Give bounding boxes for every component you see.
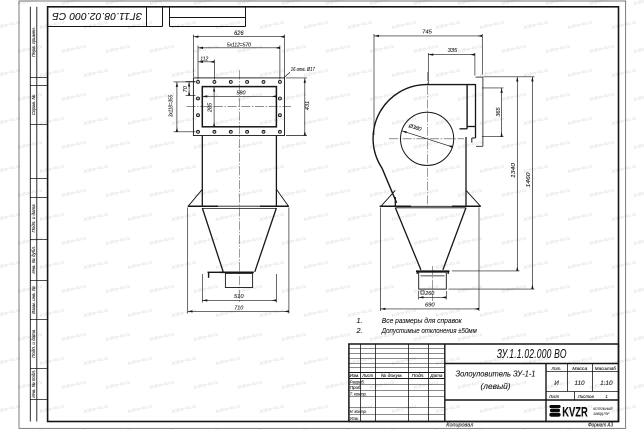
svg-text:Формат А3: Формат А3	[588, 422, 613, 428]
svg-text:ЗАВОД РЭР: ЗАВОД РЭР	[593, 412, 610, 416]
svg-text:Масштаб: Масштаб	[595, 366, 616, 371]
svg-text:2.: 2.	[356, 326, 363, 335]
svg-text:(левый): (левый)	[481, 382, 511, 391]
svg-text:Все размеры для справок: Все размеры для справок	[382, 316, 463, 325]
svg-text:Инв. № подл.: Инв. № подл.	[31, 370, 36, 398]
svg-text:№ докум.: № докум.	[381, 373, 403, 378]
svg-text:Лист: Лист	[548, 394, 559, 399]
svg-text:KVZR: KVZR	[562, 403, 588, 419]
svg-text:335: 335	[448, 48, 458, 54]
svg-text:Взам. инв. №: Взам. инв. №	[31, 286, 36, 314]
svg-text:Золоуловитель ЗУ-1-1: Золоуловитель ЗУ-1-1	[456, 370, 536, 379]
svg-text:Н. контр.: Н. контр.	[350, 409, 367, 414]
svg-text:Инв. № дубл.: Инв. № дубл.	[31, 246, 36, 274]
svg-text:И: И	[554, 380, 559, 387]
svg-text:110: 110	[574, 380, 585, 387]
svg-text:365: 365	[496, 106, 502, 116]
svg-text:Лит.: Лит.	[551, 366, 562, 371]
svg-text:1460: 1460	[526, 172, 532, 188]
svg-text:1.: 1.	[357, 316, 363, 325]
svg-text:Подп. и дата: Подп. и дата	[31, 204, 36, 233]
svg-text:Лист: Лист	[361, 373, 373, 378]
svg-text:ЗУ.1.1.02.000 ВО: ЗУ.1.1.02.000 ВО	[497, 347, 567, 361]
svg-text:Подп. и дата: Подп. и дата	[31, 329, 36, 358]
svg-text:Листов: Листов	[577, 394, 595, 399]
svg-text:Допустимые отклонения ±50мм: Допустимые отклонения ±50мм	[381, 326, 477, 335]
svg-text:Т. контр.: Т. контр.	[350, 391, 367, 396]
svg-text:Перв. примен.: Перв. примен.	[31, 27, 36, 57]
svg-text:Дата: Дата	[429, 373, 442, 378]
svg-text:710: 710	[234, 306, 244, 312]
svg-text:Изм.: Изм.	[350, 373, 360, 378]
svg-text:626: 626	[234, 31, 244, 37]
svg-text:112: 112	[200, 56, 209, 62]
svg-text:70: 70	[183, 85, 189, 92]
svg-text:Справ. №: Справ. №	[31, 95, 36, 116]
svg-text:1:10: 1:10	[600, 380, 613, 387]
svg-text:690: 690	[425, 302, 435, 308]
svg-text:285: 285	[208, 102, 214, 113]
svg-text:431: 431	[305, 101, 311, 110]
svg-text:КОТЕЛЬНЫЙ: КОТЕЛЬНЫЙ	[593, 407, 613, 411]
svg-text:Разраб.: Разраб.	[350, 379, 365, 384]
svg-text:Утв.: Утв.	[350, 416, 359, 421]
svg-text:Проб.: Проб.	[350, 385, 362, 390]
svg-text:Масса: Масса	[572, 366, 587, 371]
svg-text:Копировал: Копировал	[446, 422, 473, 428]
svg-text:Подп.: Подп.	[412, 373, 425, 378]
svg-text:1340: 1340	[511, 162, 517, 178]
svg-text:745: 745	[422, 29, 432, 35]
svg-text:580: 580	[237, 90, 247, 96]
svg-text:5x112=570: 5x112=570	[227, 42, 252, 48]
svg-text:ЗГ11.08.02.000 СБ: ЗГ11.08.02.000 СБ	[52, 10, 142, 21]
svg-text:1: 1	[605, 394, 608, 399]
svg-text:3x118=355: 3x118=355	[169, 95, 175, 117]
svg-text:260: 260	[424, 291, 434, 297]
svg-text:16 отв. Ø17: 16 отв. Ø17	[291, 67, 316, 73]
svg-text:510: 510	[234, 294, 244, 300]
